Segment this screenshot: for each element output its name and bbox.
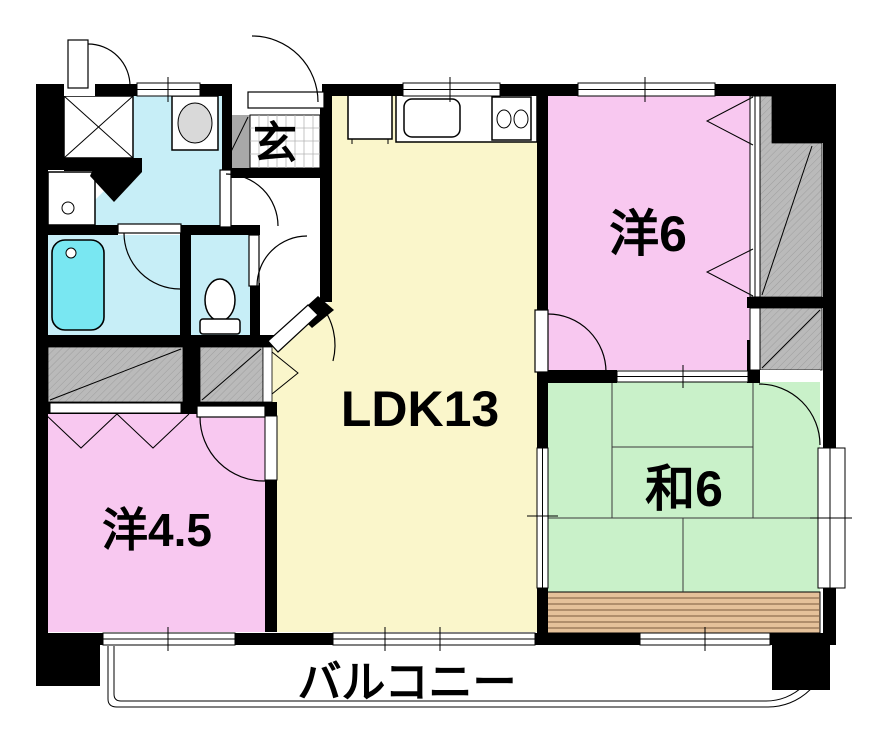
wall-bath-toilet xyxy=(180,235,191,335)
floorplan: 玄 洋6 LDK13 和6 洋4.5 バルコニー xyxy=(0,0,871,749)
wall-washroom-bottom xyxy=(36,225,118,235)
refrigerator xyxy=(348,95,392,144)
closet-ldk xyxy=(200,347,272,402)
wall-toilet-right xyxy=(250,283,260,335)
door-entrance xyxy=(248,36,324,108)
wall-washroom-right xyxy=(222,96,232,172)
kitchen-counter xyxy=(396,94,537,142)
west45-door-opening xyxy=(265,416,277,480)
wall-closets-top xyxy=(36,335,277,347)
washbasin xyxy=(172,96,218,150)
wall-west6-wa6 xyxy=(548,370,617,383)
label-balcony: バルコニー xyxy=(297,658,516,707)
wall-block-topleft xyxy=(36,96,64,170)
closet-track-lower xyxy=(750,308,760,370)
closet-lower-right xyxy=(760,308,822,370)
wall-ldk-wa6-upper xyxy=(537,372,548,448)
door-toilet xyxy=(249,235,307,286)
kitchen-sink xyxy=(404,99,460,137)
label-wa6: 和6 xyxy=(645,461,723,517)
wall-hall-right xyxy=(320,96,332,302)
gas-stove xyxy=(492,97,531,140)
label-west45: 洋4.5 xyxy=(102,504,212,556)
engawa-wood-strip xyxy=(545,592,820,633)
wall-genkan-bottom xyxy=(222,168,332,178)
wall-ldk-wa6-lower xyxy=(537,588,548,633)
closet-west45 xyxy=(48,347,183,402)
pillar-bottom-left xyxy=(36,633,100,686)
vanity-cabinet xyxy=(48,172,95,225)
door-washroom xyxy=(220,170,278,227)
label-genkan: 玄 xyxy=(253,119,297,168)
pillar-top-right xyxy=(772,84,836,143)
wall-closet-divider-right xyxy=(747,297,836,308)
wall-ldk-west6 xyxy=(537,96,548,310)
closet-track-upper xyxy=(750,96,760,297)
bathtub xyxy=(52,240,104,330)
washing-machine-pan xyxy=(64,96,133,158)
door-storage xyxy=(68,40,130,88)
closet-west45-doorline xyxy=(50,403,181,413)
pillar-bottom-right xyxy=(772,633,830,690)
label-west6: 洋6 xyxy=(609,206,687,262)
floorplan-canvas: 玄 洋6 LDK13 和6 洋4.5 バルコニー xyxy=(0,0,871,749)
label-ldk: LDK13 xyxy=(341,381,499,437)
